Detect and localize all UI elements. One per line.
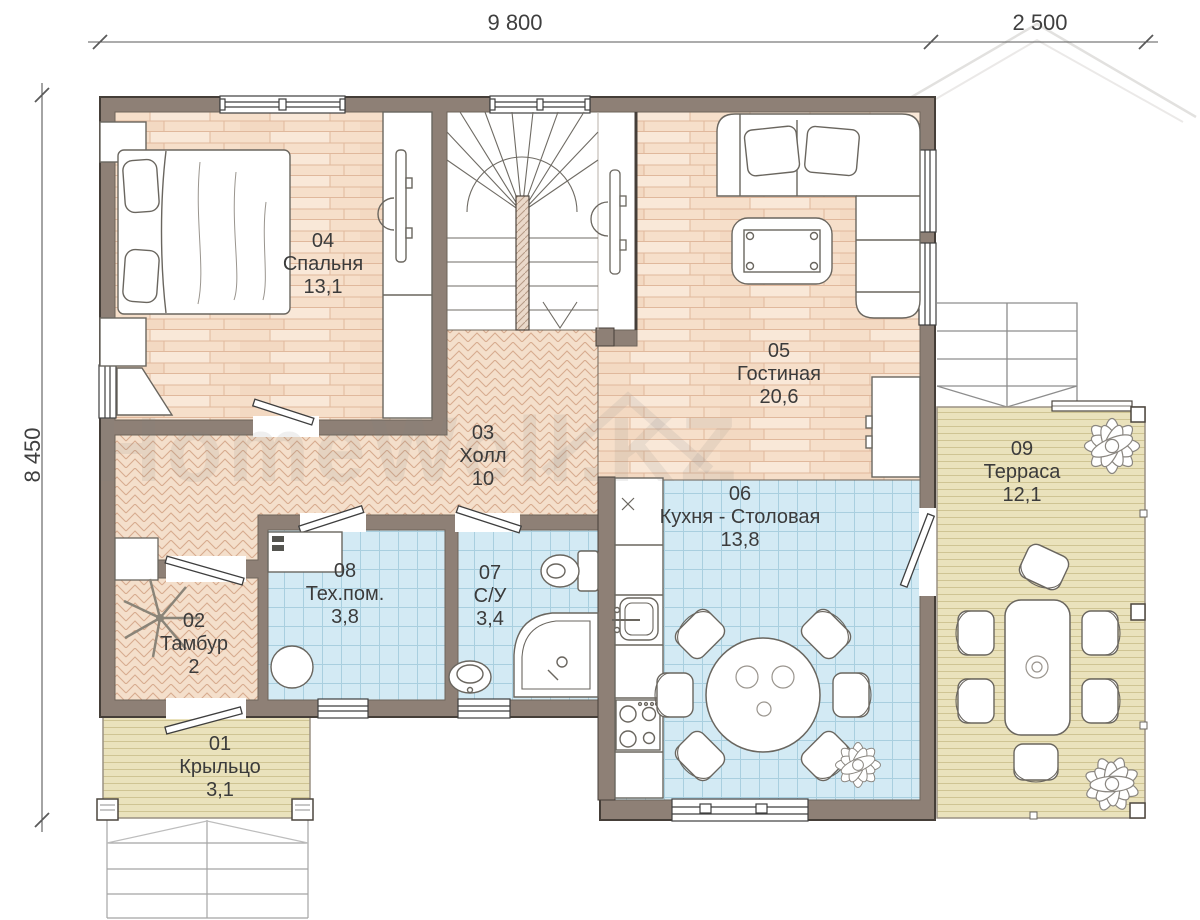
room-area: 3,8 — [306, 606, 385, 629]
dimension-height: 8 450 — [20, 427, 46, 482]
room-area: 3,4 — [474, 608, 507, 631]
water-heater — [271, 646, 313, 688]
room-label-hall: 03 Холл 10 — [459, 422, 506, 491]
room-label-kitchen: 06 Кухня - Столовая 13,8 — [660, 483, 821, 552]
room-area: 10 — [459, 468, 506, 491]
room-label-bedroom: 04 Спальня 13,1 — [283, 230, 363, 299]
wardrobe-tv — [378, 112, 432, 418]
room-area: 13,1 — [283, 276, 363, 299]
porch-steps — [107, 820, 308, 918]
room-name: Спальня — [283, 253, 363, 276]
hall-wardrobe — [115, 538, 158, 580]
room-label-tambour: 02 Тамбур 2 — [160, 610, 228, 679]
room-label-terrace: 09 Терраса 12,1 — [984, 438, 1061, 507]
sink — [449, 661, 491, 693]
window-kitchen-south — [672, 799, 808, 821]
room-area: 2 — [160, 656, 228, 679]
room-name: Холл — [459, 445, 506, 468]
room-label-porch: 01 Крыльцо 3,1 — [179, 733, 261, 802]
room-name: Крыльцо — [179, 756, 261, 779]
stove — [616, 700, 660, 750]
dimension-width-main: 9 800 — [487, 10, 542, 36]
corner-shower — [514, 613, 598, 697]
room-number: 03 — [459, 422, 506, 445]
window-living-east-1 — [919, 150, 936, 232]
interior-wall — [598, 477, 615, 800]
room-number: 06 — [660, 483, 821, 506]
window-bedroom-top — [220, 96, 345, 113]
room-number: 02 — [160, 610, 228, 633]
room-name: Терраса — [984, 461, 1061, 484]
room-number: 05 — [737, 340, 821, 363]
room-number: 08 — [306, 560, 385, 583]
room-label-bathroom: 07 С/У 3,4 — [474, 562, 507, 631]
nightstand — [100, 318, 146, 366]
room-name: Гостиная — [737, 363, 821, 386]
window-tech-south — [318, 699, 368, 718]
room-number: 04 — [283, 230, 363, 253]
room-name: Тех.пом. — [306, 583, 385, 606]
sideboard — [866, 377, 920, 477]
room-number: 09 — [984, 438, 1061, 461]
floor-plan-canvas: 9 800 2 500 8 450 HomeWell.KZ 01 Крыльцо… — [0, 0, 1200, 920]
room-area: 13,8 — [660, 529, 821, 552]
room-label-tech: 08 Тех.пом. 3,8 — [306, 560, 385, 629]
coffee-table — [732, 218, 832, 284]
potted-plant — [1085, 419, 1140, 474]
room-area: 3,1 — [179, 779, 261, 802]
toilet — [541, 551, 598, 591]
window-stairs-top — [490, 96, 590, 113]
wall-stub — [596, 328, 614, 346]
room-area: 20,6 — [737, 386, 821, 409]
exterior-stair — [937, 303, 1077, 407]
room-number: 07 — [474, 562, 507, 585]
terrace-table — [1005, 600, 1070, 735]
room-name: Тамбур — [160, 633, 228, 656]
dimension-width-terrace: 2 500 — [1012, 10, 1067, 36]
room-name: Кухня - Столовая — [660, 506, 821, 529]
door-tambour — [165, 556, 246, 585]
room-floor-stairwell — [447, 112, 637, 330]
round-table — [706, 638, 820, 752]
potted-plant — [836, 743, 881, 788]
room-number: 01 — [179, 733, 261, 756]
kitchen-counter — [612, 478, 663, 798]
watermark-text: HomeWell.KZ — [95, 398, 741, 503]
room-name: С/У — [474, 585, 507, 608]
window-living-east-2 — [919, 243, 936, 325]
window-bathroom-south — [458, 699, 510, 718]
room-area: 12,1 — [984, 484, 1061, 507]
bed — [118, 150, 290, 314]
room-label-living: 05 Гостиная 20,6 — [737, 340, 821, 409]
